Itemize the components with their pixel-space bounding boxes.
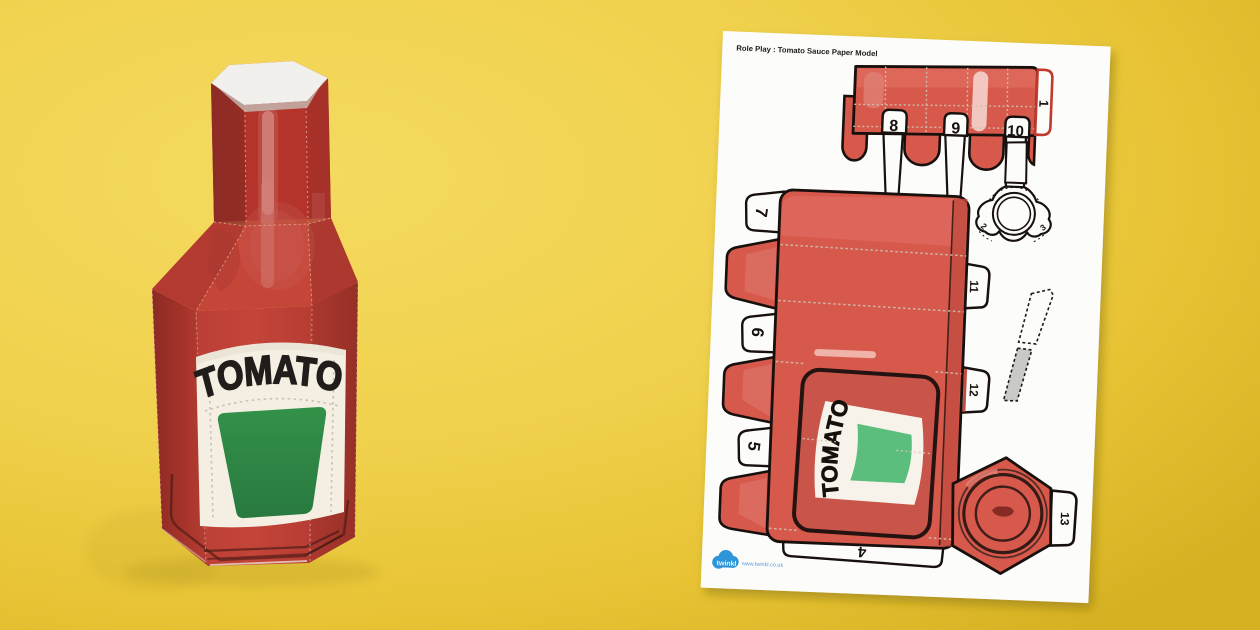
svg-text:twinkl: twinkl xyxy=(716,560,736,568)
svg-text:12: 12 xyxy=(967,383,982,397)
svg-text:13: 13 xyxy=(1057,512,1072,526)
svg-text:11: 11 xyxy=(967,280,982,294)
svg-text:9: 9 xyxy=(951,120,961,137)
svg-text:1: 1 xyxy=(1036,100,1051,108)
svg-text:10: 10 xyxy=(1007,122,1024,140)
svg-text:8: 8 xyxy=(889,118,899,135)
